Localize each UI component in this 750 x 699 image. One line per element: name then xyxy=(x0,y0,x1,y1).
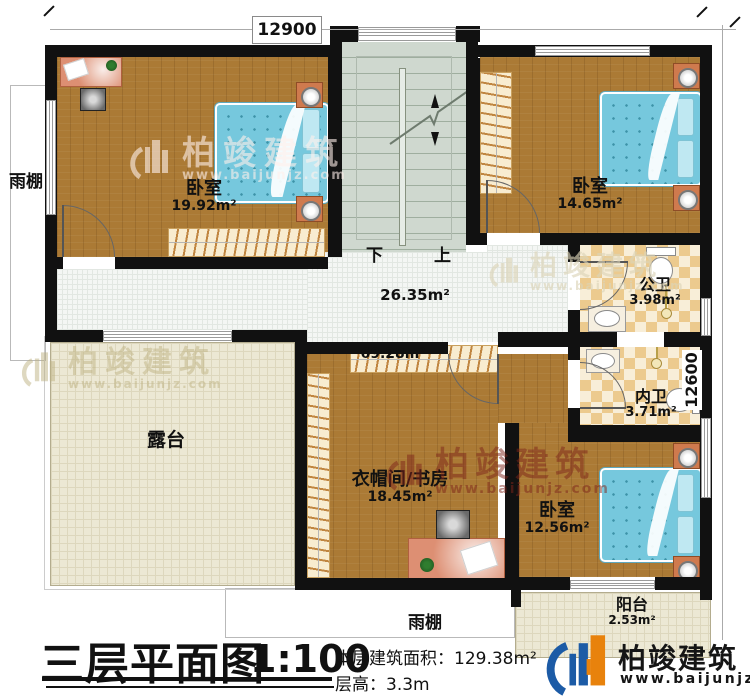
nightstand-icon xyxy=(673,185,700,211)
plant-icon xyxy=(420,558,434,572)
pillow-icon xyxy=(677,474,694,512)
floor-height-label: 层高： xyxy=(335,675,386,695)
brand-url: www.baijunjz.com xyxy=(620,671,750,687)
room-label-ensuite-bath: 内卫 3.71m² xyxy=(611,388,691,420)
floor-area-value: 129.38m² xyxy=(454,649,537,669)
room-label-public-bath: 公卫 3.98m² xyxy=(615,276,695,308)
wall xyxy=(478,233,487,245)
dimension-tick xyxy=(43,5,54,16)
terrace-outline xyxy=(44,336,305,590)
room-area: 3.71m² xyxy=(611,406,691,421)
floor-plan: 下 上 xyxy=(0,0,750,699)
room-area: 3.98m² xyxy=(615,294,695,309)
door-leaf xyxy=(62,205,64,257)
floor-drain-icon xyxy=(651,358,662,369)
floor-area-label: 本层建筑面积： xyxy=(335,649,454,669)
pillow-icon xyxy=(677,98,694,136)
room-label-bedroom-br: 卧室 12.56m² xyxy=(512,501,602,537)
upper-area-label: 69.28m² xyxy=(348,347,438,363)
page-title: 三层平面图 xyxy=(40,628,265,692)
room-area: 2.53m² xyxy=(592,614,672,627)
floor-area-stat: 本层建筑面积：129.38m² xyxy=(335,644,537,669)
wall xyxy=(540,233,712,245)
canopy-left-area xyxy=(10,85,46,361)
title-underline xyxy=(42,677,332,681)
wall xyxy=(45,330,103,342)
nightstand-icon xyxy=(296,82,323,108)
plant-icon xyxy=(106,60,117,71)
wall xyxy=(328,57,342,257)
room-label-balcony: 阳台 2.53m² xyxy=(592,596,672,627)
floor-height-stat: 层高：3.3m xyxy=(335,670,430,695)
window xyxy=(103,331,232,341)
wall xyxy=(568,245,580,262)
room-name: 内卫 xyxy=(611,388,691,406)
pillow-icon xyxy=(677,516,694,554)
dimension-label-top: 12900 xyxy=(252,16,322,44)
room-area: 19.92m² xyxy=(149,199,259,215)
stair-break-line xyxy=(342,42,466,252)
door-leaf xyxy=(497,354,499,404)
room-name: 衣帽间/书房 xyxy=(310,470,490,490)
wall xyxy=(568,425,712,442)
pillow-icon xyxy=(302,109,320,149)
toilet-icon xyxy=(646,247,676,256)
dimension-line-top xyxy=(50,29,736,30)
room-label-terrace: 露台 xyxy=(131,430,201,451)
window xyxy=(701,418,711,498)
room-area: 26.35m² xyxy=(370,287,460,304)
canopy-left-label: 雨棚 xyxy=(9,167,43,192)
dimension-tick xyxy=(729,16,740,27)
wall xyxy=(466,42,478,58)
floor-drain-icon xyxy=(661,308,672,319)
wardrobe-bedroom-tl xyxy=(168,228,325,257)
wall xyxy=(45,45,330,57)
floor-hallway-west xyxy=(57,269,307,330)
stairs-up-label: 上 xyxy=(434,241,451,266)
room-area: 12.56m² xyxy=(512,521,602,537)
dimension-tick xyxy=(696,6,707,17)
nightstand-icon xyxy=(673,63,700,89)
wall xyxy=(330,42,342,58)
sink-basin-icon xyxy=(594,310,620,327)
computer-icon xyxy=(80,88,106,111)
wall xyxy=(295,578,520,590)
room-label-bedroom-tr: 卧室 14.65m² xyxy=(540,177,640,213)
nightstand-icon xyxy=(673,443,700,469)
room-name: 卧室 xyxy=(512,501,602,521)
window xyxy=(535,46,650,56)
wall xyxy=(655,577,712,590)
brand-logo-icon xyxy=(543,630,617,696)
window xyxy=(701,298,711,336)
floor-hallway-north xyxy=(487,245,568,252)
door-leaf xyxy=(580,261,628,263)
computer-icon xyxy=(436,510,470,539)
canopy-bottom-area xyxy=(225,588,515,638)
lamp-icon xyxy=(678,190,698,210)
window xyxy=(570,580,655,589)
wardrobe-bedroom-tr xyxy=(480,72,512,194)
nightstand-icon xyxy=(296,196,323,222)
room-label-cloak-study: 衣帽间/书房 18.45m² xyxy=(310,470,490,506)
floor-vestibule xyxy=(498,354,568,423)
wall xyxy=(466,58,480,245)
window xyxy=(46,100,56,215)
lamp-icon xyxy=(678,68,698,88)
room-name: 阳台 xyxy=(592,596,672,614)
wall xyxy=(295,342,307,590)
room-name: 卧室 xyxy=(540,177,640,197)
pillow-icon xyxy=(677,140,694,178)
room-name: 露台 xyxy=(131,430,201,451)
canopy-bottom-label: 雨棚 xyxy=(408,608,442,633)
dimension-label-right: 12600 xyxy=(682,350,702,410)
room-name: 卧室 xyxy=(149,179,259,199)
floor-height-value: 3.3m xyxy=(386,675,430,695)
wall xyxy=(45,257,63,269)
room-area: 69.28m² xyxy=(348,347,438,363)
door-leaf xyxy=(486,180,488,233)
lamp-icon xyxy=(301,87,321,107)
stairs-down-label: 下 xyxy=(366,241,383,266)
floor-bedroom-br-entry xyxy=(519,423,568,442)
wall xyxy=(232,330,307,342)
wall xyxy=(498,332,617,347)
lamp-icon xyxy=(301,201,321,221)
lamp-icon xyxy=(678,448,698,468)
wall xyxy=(516,577,570,590)
room-name: 公卫 xyxy=(615,276,695,294)
room-area: 14.65m² xyxy=(540,197,640,213)
hallway-area-label: 26.35m² xyxy=(370,287,460,304)
room-area: 18.45m² xyxy=(310,490,490,506)
title-underline-2 xyxy=(46,686,334,688)
room-label-bedroom-tl: 卧室 19.92m² xyxy=(149,179,259,215)
wall xyxy=(511,589,521,607)
dimension-line-right xyxy=(722,25,723,640)
pillow-icon xyxy=(302,153,320,193)
wall xyxy=(115,257,328,269)
